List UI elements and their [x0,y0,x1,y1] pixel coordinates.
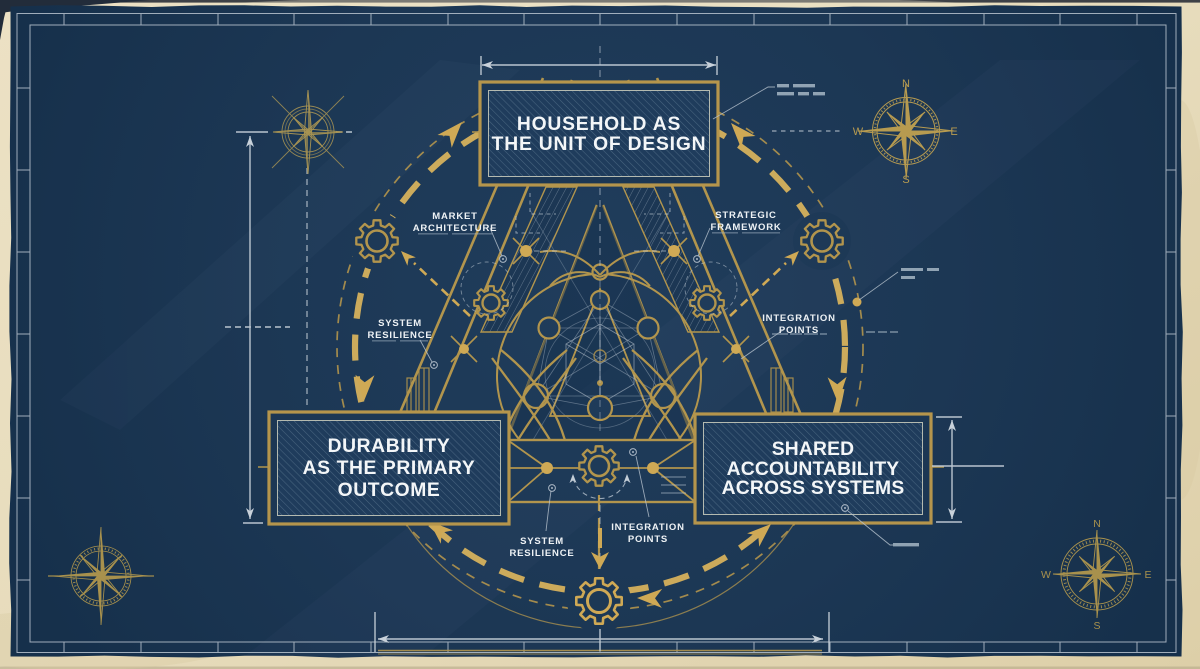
svg-text:ARCHITECTURE: ARCHITECTURE [413,223,498,234]
svg-text:S: S [1093,620,1100,632]
svg-text:RESILIENCE: RESILIENCE [509,548,574,559]
svg-text:DURABILITY: DURABILITY [328,436,451,457]
svg-text:ACROSS SYSTEMS: ACROSS SYSTEMS [722,478,905,499]
svg-text:N: N [902,78,910,90]
svg-text:E: E [950,126,957,138]
svg-text:OUTCOME: OUTCOME [338,480,441,501]
svg-text:N: N [1093,518,1101,530]
svg-text:SYSTEM: SYSTEM [378,318,422,329]
svg-text:POINTS: POINTS [628,534,668,545]
svg-text:SHARED: SHARED [772,439,855,460]
svg-text:E: E [1144,569,1151,581]
svg-text:S: S [902,174,909,186]
svg-text:INTEGRATION: INTEGRATION [762,313,836,324]
svg-text:THE UNIT OF DESIGN: THE UNIT OF DESIGN [492,134,707,155]
svg-text:MARKET: MARKET [432,211,477,222]
svg-text:AS THE PRIMARY: AS THE PRIMARY [303,458,476,479]
svg-text:STRATEGIC: STRATEGIC [715,210,776,221]
svg-text:POINTS: POINTS [779,325,819,336]
svg-text:HOUSEHOLD AS: HOUSEHOLD AS [517,114,681,135]
svg-text:RESILIENCE: RESILIENCE [367,330,432,341]
svg-text:FRAMEWORK: FRAMEWORK [710,222,781,233]
svg-text:INTEGRATION: INTEGRATION [611,522,685,533]
svg-text:W: W [853,126,864,138]
svg-text:ACCOUNTABILITY: ACCOUNTABILITY [727,459,900,480]
svg-text:SYSTEM: SYSTEM [520,536,564,547]
svg-text:W: W [1041,569,1051,581]
